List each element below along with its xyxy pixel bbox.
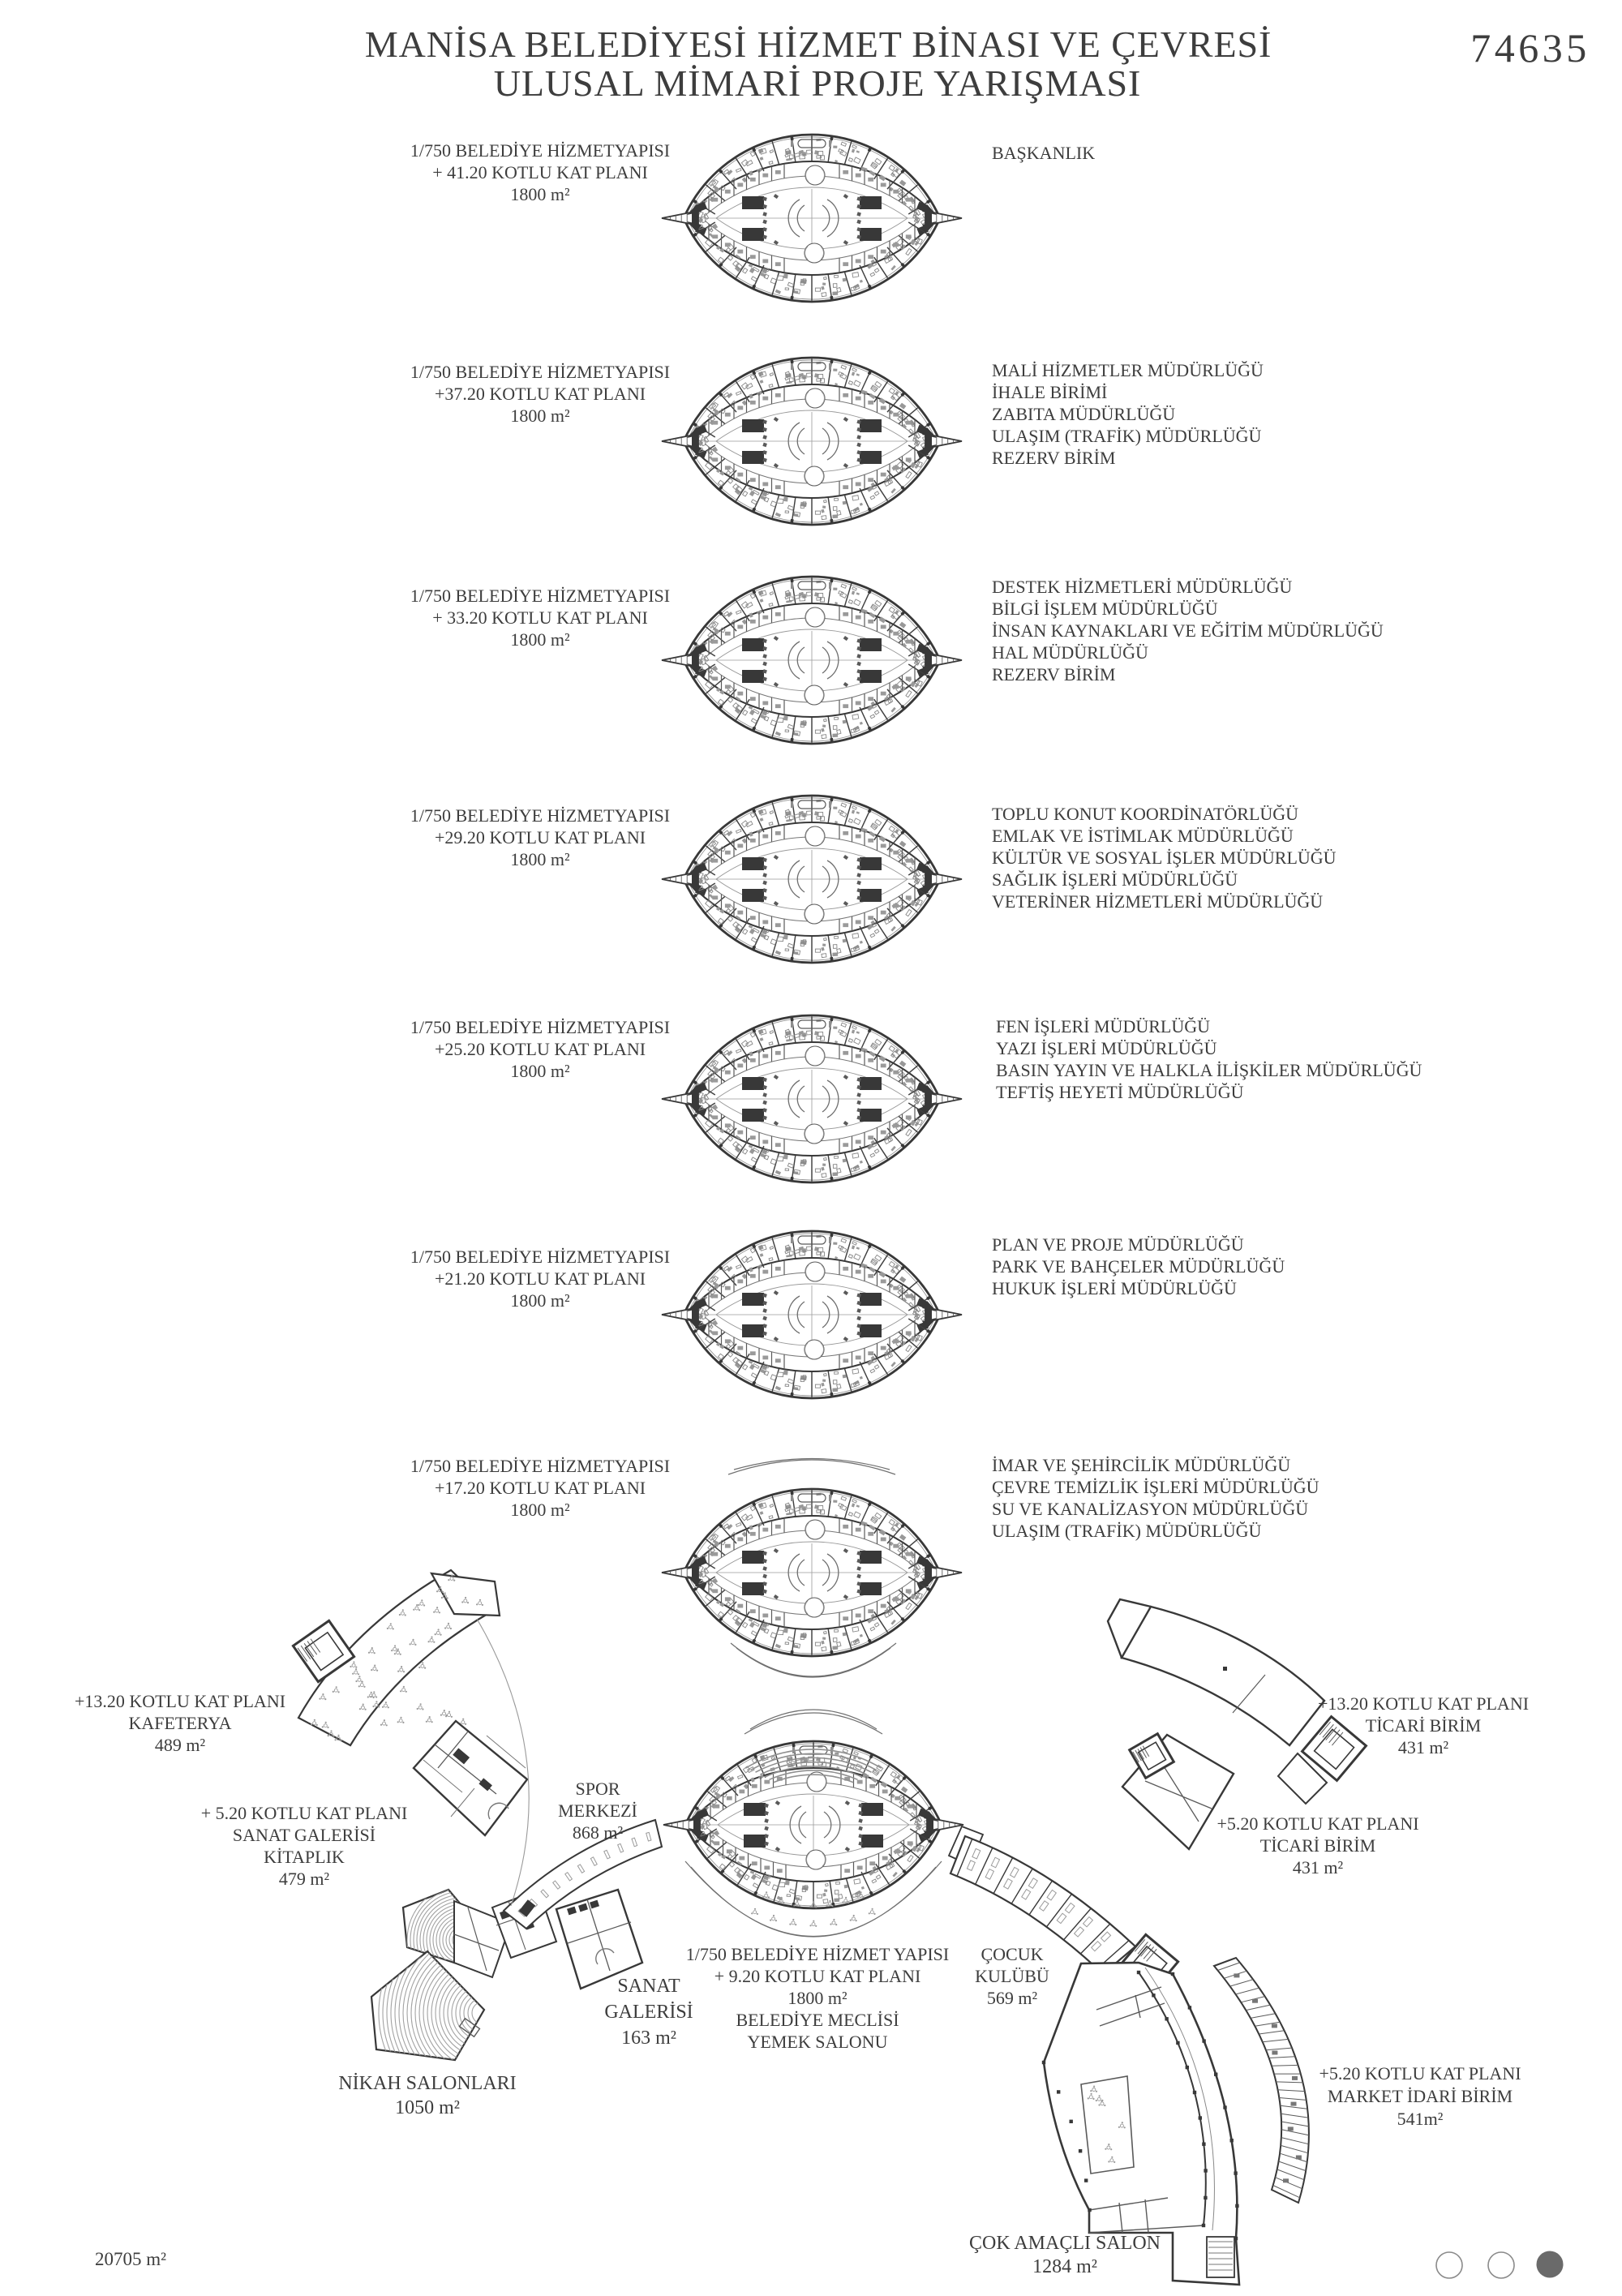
svg-text:+ 9.20 KOTLU KAT PLANI: + 9.20 KOTLU KAT PLANI	[714, 1966, 921, 1986]
svg-text:MERKEZİ: MERKEZİ	[558, 1800, 637, 1821]
svg-text:BAŞKANLIK: BAŞKANLIK	[992, 143, 1095, 163]
svg-text:+17.20 KOTLU KAT PLANI: +17.20 KOTLU KAT PLANI	[435, 1478, 646, 1498]
svg-text:HAL MÜDÜRLÜĞÜ: HAL MÜDÜRLÜĞÜ	[992, 642, 1148, 663]
svg-text:1/750 BELEDİYE HİZMETYAPISI: 1/750 BELEDİYE HİZMETYAPISI	[410, 805, 670, 826]
svg-text:1050 m²: 1050 m²	[395, 2097, 460, 2118]
svg-text:+13.20 KOTLU KAT PLANI: +13.20 KOTLU KAT PLANI	[75, 1691, 285, 1711]
svg-text:SAĞLIK İŞLERİ MÜDÜRLÜĞÜ: SAĞLIK İŞLERİ MÜDÜRLÜĞÜ	[992, 869, 1238, 890]
svg-text:431 m²: 431 m²	[1398, 1737, 1449, 1757]
svg-text:1800 m²: 1800 m²	[510, 1500, 570, 1520]
svg-text:İMAR VE ŞEHİRCİLİK MÜDÜRLÜĞÜ: İMAR VE ŞEHİRCİLİK MÜDÜRLÜĞÜ	[992, 1455, 1290, 1475]
svg-text:1800 m²: 1800 m²	[510, 1290, 570, 1311]
svg-text:+25.20 KOTLU KAT PLANI: +25.20 KOTLU KAT PLANI	[435, 1039, 646, 1059]
svg-text:1800 m²: 1800 m²	[510, 184, 570, 204]
svg-text:ULAŞIM (TRAFİK) MÜDÜRLÜĞÜ: ULAŞIM (TRAFİK) MÜDÜRLÜĞÜ	[992, 426, 1262, 446]
svg-text:+5.20 KOTLU KAT PLANI: +5.20 KOTLU KAT PLANI	[1216, 1813, 1418, 1834]
svg-text:569 m²: 569 m²	[987, 1988, 1038, 2008]
svg-text:REZERV BİRİM: REZERV BİRİM	[992, 448, 1115, 468]
svg-text:ULUSAL MİMARİ PROJE YARIŞMASI: ULUSAL MİMARİ PROJE YARIŞMASI	[494, 62, 1141, 104]
svg-text:HUKUK İŞLERİ MÜDÜRLÜĞÜ: HUKUK İŞLERİ MÜDÜRLÜĞÜ	[992, 1278, 1237, 1298]
svg-text:ULAŞIM (TRAFİK) MÜDÜRLÜĞÜ: ULAŞIM (TRAFİK) MÜDÜRLÜĞÜ	[992, 1521, 1262, 1541]
svg-text:VETERİNER HİZMETLERİ MÜDÜRLÜĞÜ: VETERİNER HİZMETLERİ MÜDÜRLÜĞÜ	[992, 891, 1323, 912]
svg-text:1800 m²: 1800 m²	[510, 629, 570, 650]
svg-text:+5.20 KOTLU KAT PLANI: +5.20 KOTLU KAT PLANI	[1319, 2063, 1521, 2084]
svg-text:479 m²: 479 m²	[279, 1869, 330, 1889]
svg-text:TEFTİŞ HEYETİ MÜDÜRLÜĞÜ: TEFTİŞ HEYETİ MÜDÜRLÜĞÜ	[996, 1082, 1244, 1102]
svg-text:YEMEK SALONU: YEMEK SALONU	[748, 2032, 888, 2052]
svg-text:MALİ HİZMETLER MÜDÜRLÜĞÜ: MALİ HİZMETLER MÜDÜRLÜĞÜ	[992, 360, 1264, 380]
svg-text:+13.20 KOTLU KAT PLANI: +13.20 KOTLU KAT PLANI	[1318, 1693, 1529, 1714]
svg-text:İNSAN KAYNAKLARI VE EĞİTİM MÜD: İNSAN KAYNAKLARI VE EĞİTİM MÜDÜRLÜĞÜ	[992, 620, 1384, 641]
svg-text:İHALE BİRİMİ: İHALE BİRİMİ	[992, 382, 1107, 402]
svg-text:KÜLTÜR VE SOSYAL İŞLER MÜDÜRLÜ: KÜLTÜR VE SOSYAL İŞLER MÜDÜRLÜĞÜ	[992, 848, 1337, 868]
svg-text:ÇOCUK: ÇOCUK	[980, 1944, 1043, 1964]
svg-text:SPOR: SPOR	[575, 1779, 620, 1799]
svg-text:+37.20 KOTLU KAT PLANI: +37.20 KOTLU KAT PLANI	[435, 384, 646, 404]
svg-text:868 m²: 868 m²	[573, 1822, 624, 1843]
svg-text:MARKET İDARİ BİRİM: MARKET İDARİ BİRİM	[1328, 2086, 1513, 2106]
svg-text:KULÜBÜ: KULÜBÜ	[975, 1966, 1049, 1986]
svg-text:BİLGİ İŞLEM MÜDÜRLÜĞÜ: BİLGİ İŞLEM MÜDÜRLÜĞÜ	[992, 599, 1218, 619]
svg-text:74635: 74635	[1470, 25, 1590, 71]
svg-text:1800 m²: 1800 m²	[787, 1988, 847, 2008]
svg-text:GALERİSİ: GALERİSİ	[604, 2002, 693, 2023]
svg-text:ZABITA MÜDÜRLÜĞÜ: ZABITA MÜDÜRLÜĞÜ	[992, 404, 1175, 424]
svg-text:1/750 BELEDİYE HİZMET YAPISI: 1/750 BELEDİYE HİZMET YAPISI	[686, 1944, 949, 1964]
svg-text:ÇOK AMAÇLI SALON: ÇOK AMAÇLI SALON	[969, 2233, 1161, 2254]
svg-text:1/750 BELEDİYE HİZMETYAPISI: 1/750 BELEDİYE HİZMETYAPISI	[410, 1017, 670, 1037]
svg-text:431 m²: 431 m²	[1293, 1857, 1344, 1878]
svg-text:+ 33.20 KOTLU KAT PLANI: + 33.20 KOTLU KAT PLANI	[432, 607, 648, 628]
svg-text:+21.20 KOTLU KAT PLANI: +21.20 KOTLU KAT PLANI	[435, 1268, 646, 1289]
svg-text:+29.20 KOTLU KAT PLANI: +29.20 KOTLU KAT PLANI	[435, 827, 646, 848]
svg-text:SANAT: SANAT	[617, 1976, 680, 1997]
svg-text:+ 41.20 KOTLU KAT PLANI: + 41.20 KOTLU KAT PLANI	[432, 162, 648, 182]
svg-text:EMLAK VE İSTİMLAK MÜDÜRLÜĞÜ: EMLAK VE İSTİMLAK MÜDÜRLÜĞÜ	[992, 826, 1294, 846]
svg-text:SU VE KANALİZASYON MÜDÜRLÜĞÜ: SU VE KANALİZASYON MÜDÜRLÜĞÜ	[992, 1499, 1308, 1519]
svg-text:1/750 BELEDİYE HİZMETYAPISI: 1/750 BELEDİYE HİZMETYAPISI	[410, 362, 670, 382]
svg-text:FEN İŞLERİ MÜDÜRLÜĞÜ: FEN İŞLERİ MÜDÜRLÜĞÜ	[996, 1016, 1210, 1036]
svg-text:1/750 BELEDİYE HİZMETYAPISI: 1/750 BELEDİYE HİZMETYAPISI	[410, 586, 670, 606]
svg-text:DESTEK HİZMETLERİ MÜDÜRLÜĞÜ: DESTEK HİZMETLERİ MÜDÜRLÜĞÜ	[992, 577, 1292, 597]
svg-text:20705 m²: 20705 m²	[95, 2249, 166, 2269]
svg-text:NİKAH SALONLARI: NİKAH SALONLARI	[338, 2073, 516, 2094]
svg-text:BASIN YAYIN VE HALKLA İLİŞKİLE: BASIN YAYIN VE HALKLA İLİŞKİLER MÜDÜRLÜĞ…	[996, 1060, 1422, 1080]
svg-text:BELEDİYE MECLİSİ: BELEDİYE MECLİSİ	[736, 2010, 899, 2030]
svg-text:SANAT GALERİSİ: SANAT GALERİSİ	[233, 1825, 375, 1845]
svg-text:YAZI İŞLERİ MÜDÜRLÜĞÜ: YAZI İŞLERİ MÜDÜRLÜĞÜ	[996, 1038, 1217, 1058]
svg-text:1800 m²: 1800 m²	[510, 406, 570, 426]
svg-text:MANİSA BELEDİYESİ HİZMET BİNAS: MANİSA BELEDİYESİ HİZMET BİNASI VE ÇEVRE…	[365, 24, 1272, 65]
svg-text:489 m²: 489 m²	[155, 1735, 206, 1755]
svg-text:PARK VE BAHÇELER MÜDÜRLÜĞÜ: PARK VE BAHÇELER MÜDÜRLÜĞÜ	[992, 1256, 1285, 1277]
svg-text:KAFETERYA: KAFETERYA	[128, 1713, 231, 1733]
svg-text:1/750 BELEDİYE HİZMETYAPISI: 1/750 BELEDİYE HİZMETYAPISI	[410, 1247, 670, 1267]
svg-text:1800 m²: 1800 m²	[510, 1061, 570, 1081]
svg-text:1284 m²: 1284 m²	[1032, 2256, 1097, 2277]
svg-text:TOPLU KONUT KOORDİNATÖRLÜĞÜ: TOPLU KONUT KOORDİNATÖRLÜĞÜ	[992, 804, 1298, 824]
svg-text:TİCARİ BİRİM: TİCARİ BİRİM	[1260, 1835, 1375, 1856]
svg-text:163 m²: 163 m²	[621, 2028, 676, 2049]
svg-text:1800 m²: 1800 m²	[510, 849, 570, 869]
svg-text:REZERV BİRİM: REZERV BİRİM	[992, 664, 1115, 685]
svg-text:ÇEVRE TEMİZLİK İŞLERİ MÜDÜRLÜĞ: ÇEVRE TEMİZLİK İŞLERİ MÜDÜRLÜĞÜ	[992, 1477, 1319, 1497]
svg-text:541m²: 541m²	[1397, 2109, 1444, 2129]
svg-text:TİCARİ BİRİM: TİCARİ BİRİM	[1366, 1715, 1481, 1736]
svg-text:+ 5.20 KOTLU KAT PLANI: + 5.20 KOTLU KAT PLANI	[201, 1803, 408, 1823]
svg-text:PLAN VE PROJE MÜDÜRLÜĞÜ: PLAN VE PROJE MÜDÜRLÜĞÜ	[992, 1234, 1244, 1255]
svg-text:KİTAPLIK: KİTAPLIK	[264, 1847, 345, 1867]
svg-text:1/750 BELEDİYE HİZMETYAPISI: 1/750 BELEDİYE HİZMETYAPISI	[410, 1456, 670, 1476]
svg-text:1/750 BELEDİYE HİZMETYAPISI: 1/750 BELEDİYE HİZMETYAPISI	[410, 140, 670, 161]
